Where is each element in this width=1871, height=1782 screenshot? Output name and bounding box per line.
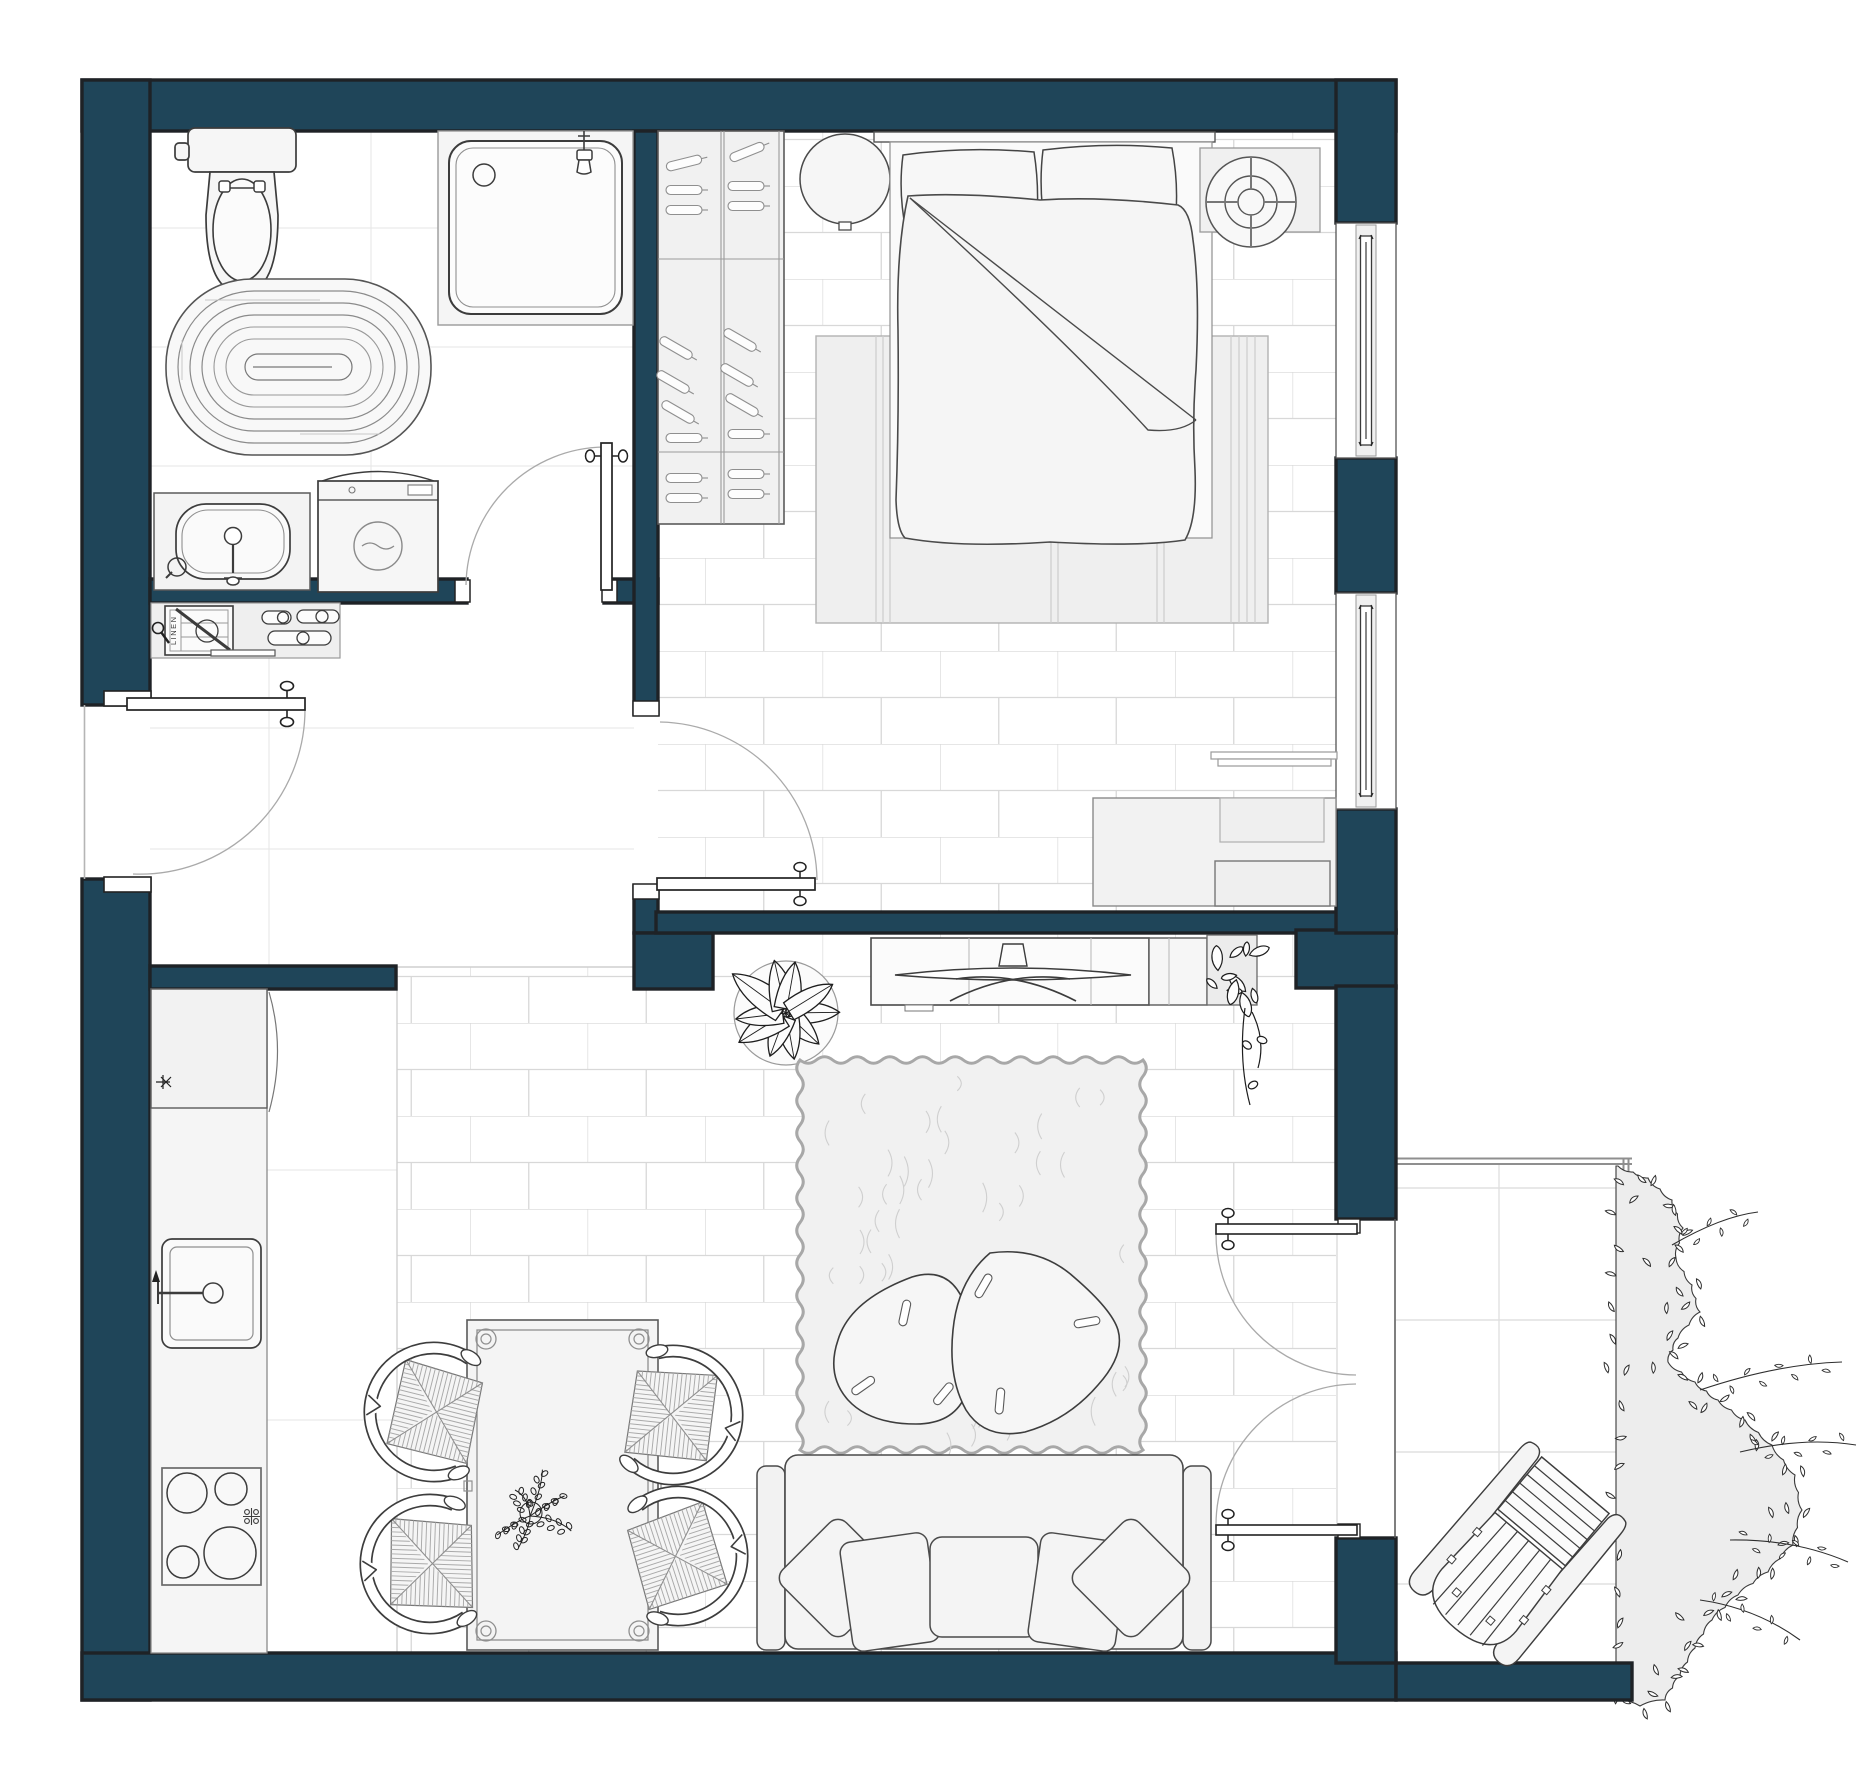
svg-text:LINEN: LINEN xyxy=(169,615,178,645)
